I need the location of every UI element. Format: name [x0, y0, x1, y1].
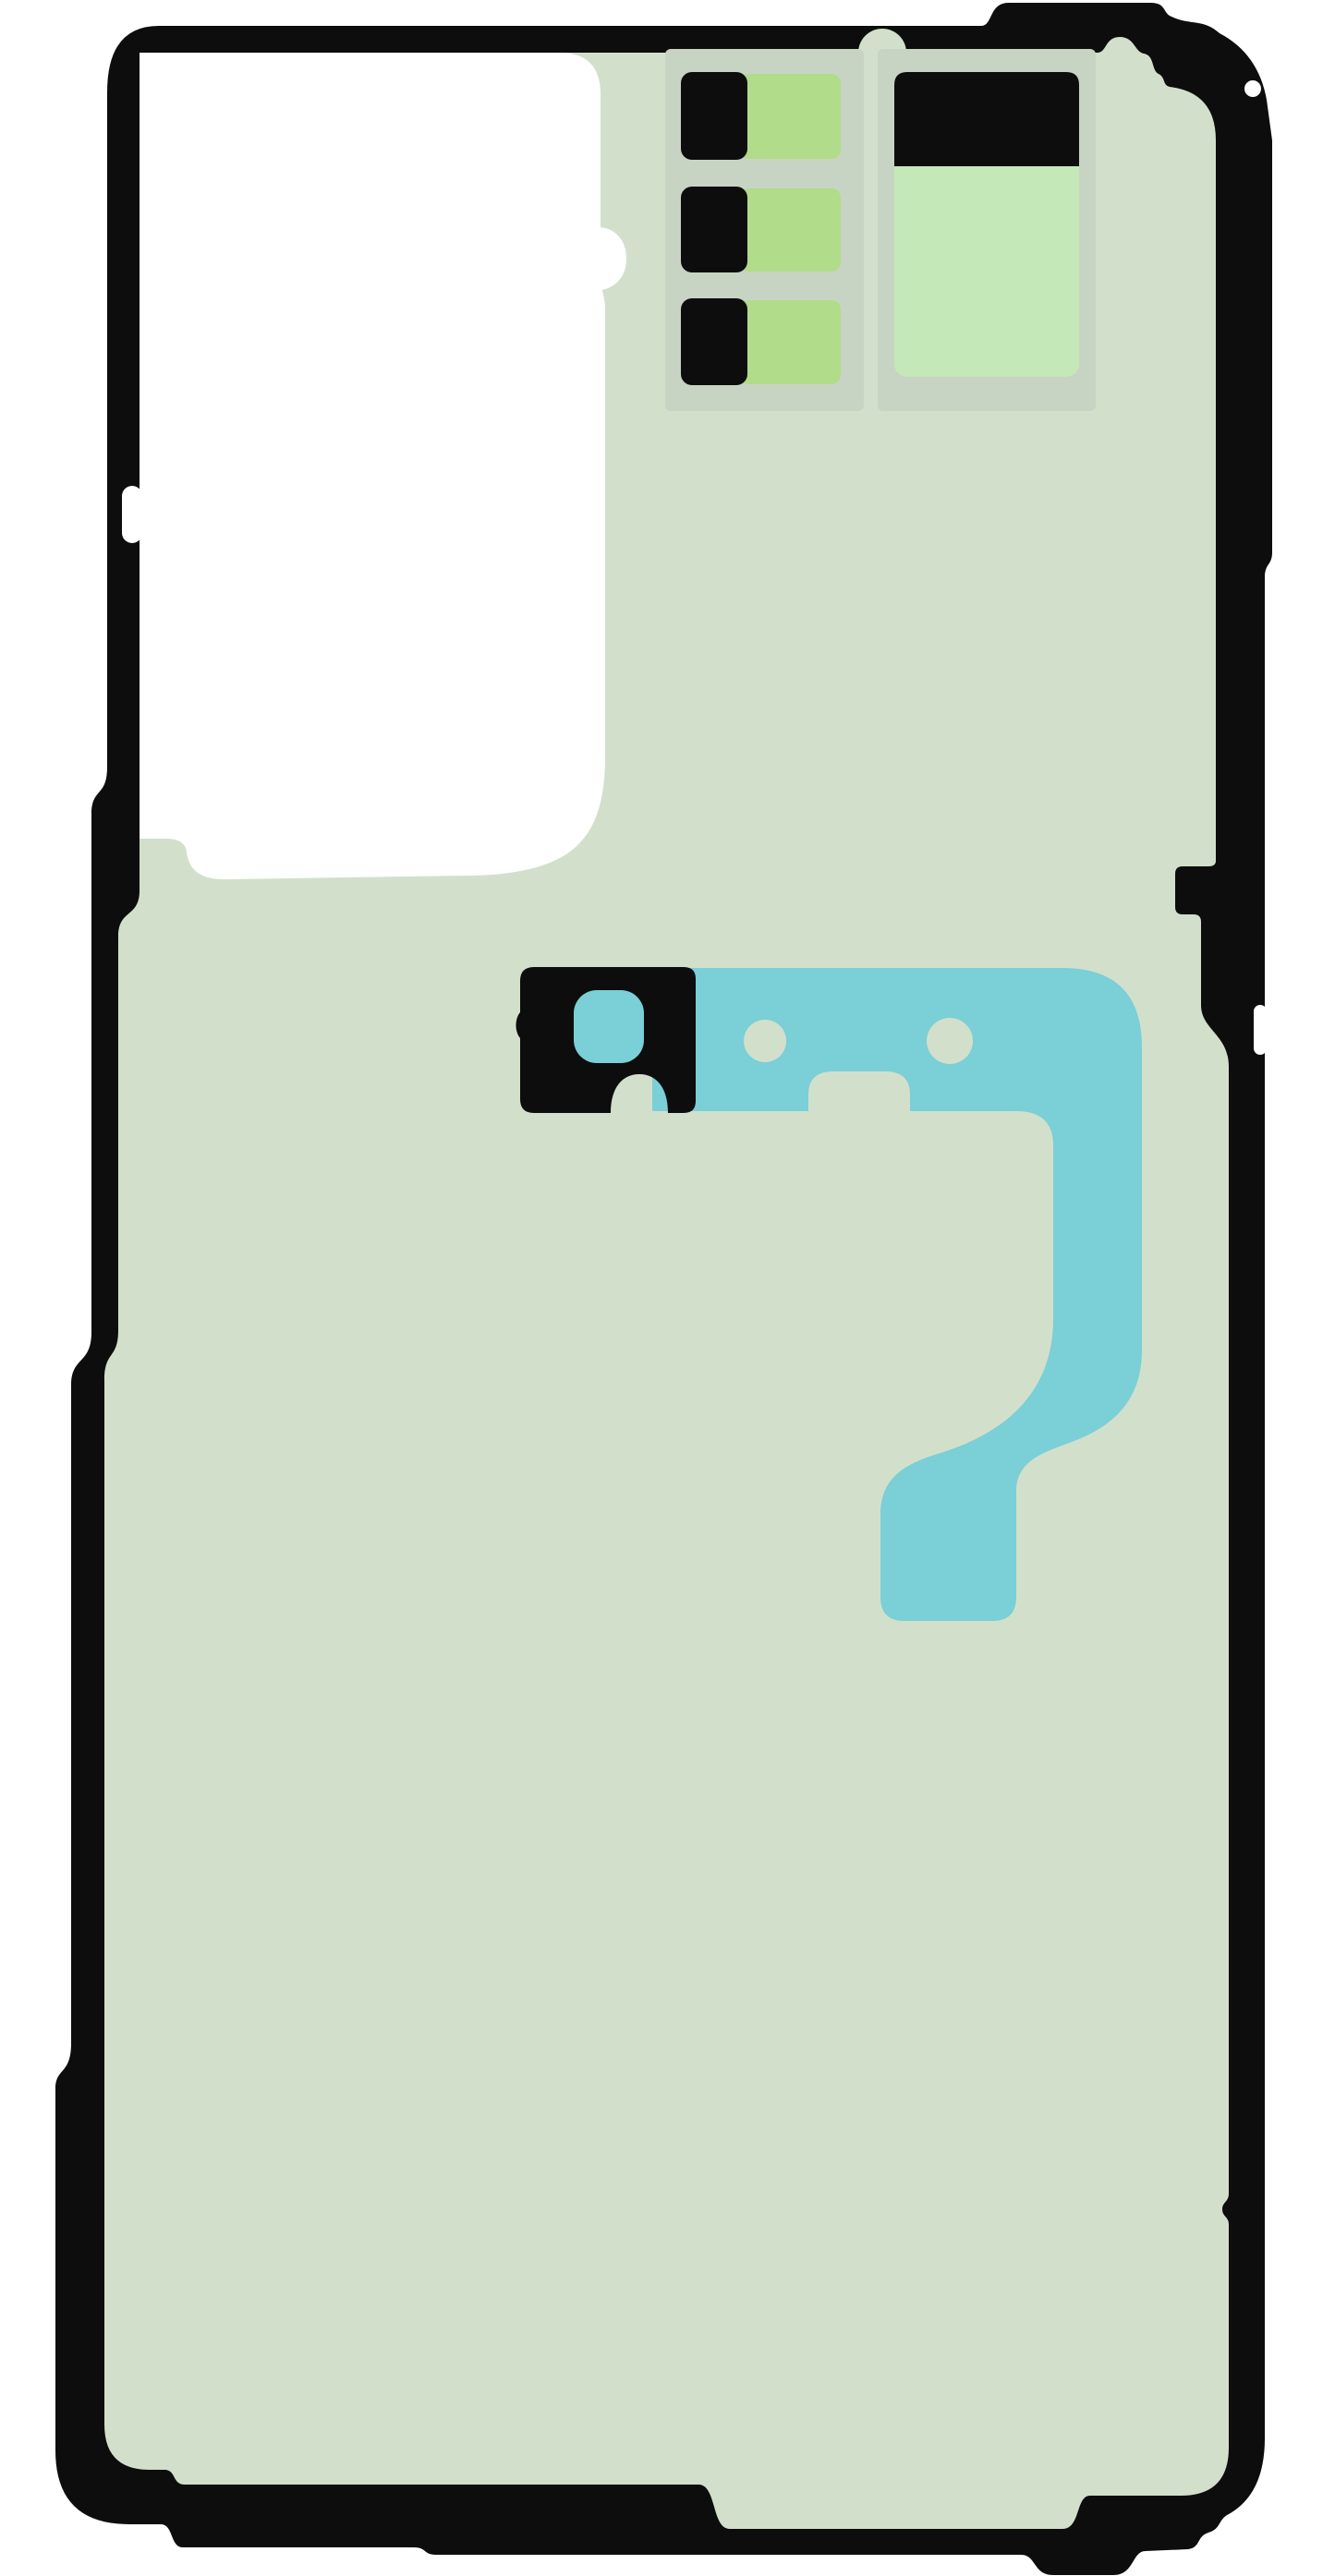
- camera-lens-pad: [574, 990, 644, 1063]
- camera-cutout: [140, 53, 626, 879]
- swatch-green: [739, 300, 841, 384]
- swatch-row: [681, 187, 841, 272]
- camera-cutout-side-notch: [122, 486, 142, 543]
- swatch-card-left: [665, 49, 864, 411]
- outer-edge-nick-top-right: [1244, 80, 1261, 97]
- swatch-card-right: [878, 49, 1096, 411]
- swatch-row: [681, 298, 841, 385]
- adhesive-kit-canvas: [0, 0, 1335, 2576]
- swatch-green: [739, 188, 841, 272]
- swatch-black: [681, 187, 747, 272]
- swatch-black: [681, 72, 747, 160]
- outer-edge-nick-right: [1254, 1005, 1267, 1055]
- adhesive-kit-illustration: [0, 0, 1335, 2576]
- swatch-green: [739, 74, 841, 159]
- swatch-black: [681, 298, 747, 385]
- pipe-bottom-notch: [808, 1071, 910, 1111]
- black-header-swatch: [894, 72, 1079, 166]
- swatch-row: [681, 72, 841, 160]
